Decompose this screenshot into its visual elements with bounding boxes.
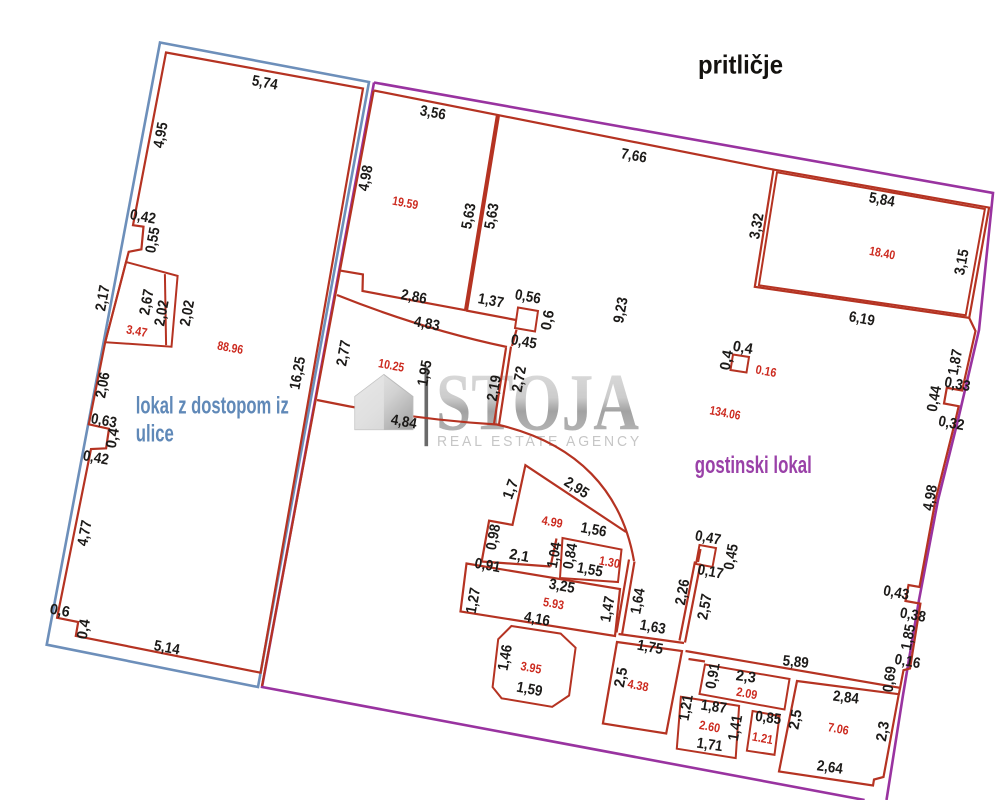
svg-text:2,3: 2,3 (735, 667, 757, 687)
svg-text:0,69: 0,69 (880, 665, 900, 693)
svg-text:2,5: 2,5 (785, 708, 805, 731)
svg-text:lokal z dostopom iz: lokal z dostopom iz (136, 393, 289, 420)
svg-text:0,85: 0,85 (754, 708, 782, 728)
svg-text:5,89: 5,89 (782, 652, 810, 672)
svg-text:ulice: ulice (136, 421, 174, 448)
svg-text:gostinski lokal: gostinski lokal (695, 452, 812, 479)
svg-text:1,71: 1,71 (696, 735, 724, 755)
svg-text:REAL ESTATE AGENCY: REAL ESTATE AGENCY (437, 433, 642, 450)
svg-text:2,1: 2,1 (508, 546, 531, 566)
svg-text:0,6: 0,6 (538, 309, 558, 332)
svg-text:2,84: 2,84 (832, 688, 860, 708)
svg-text:2,3: 2,3 (873, 720, 893, 743)
svg-text:0,6: 0,6 (48, 601, 71, 621)
svg-text:1,87: 1,87 (700, 697, 728, 717)
svg-text:pritličje: pritličje (698, 50, 783, 80)
